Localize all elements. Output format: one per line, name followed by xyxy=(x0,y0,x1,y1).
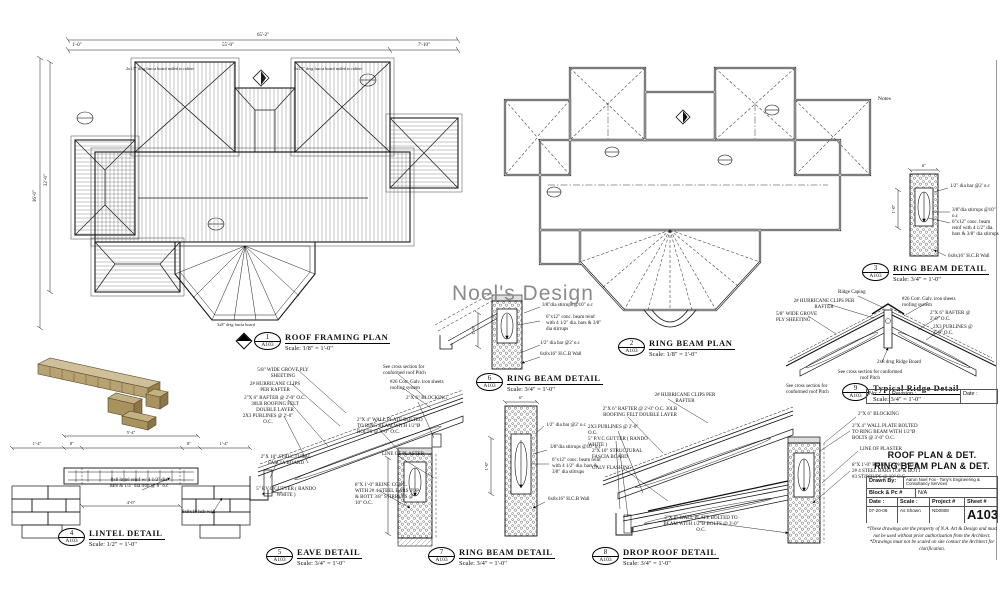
sheet-ref: A103 xyxy=(619,348,644,355)
d8-gutter-label: 5" P.V.C GUTTER ( RANDO WHITE ) xyxy=(588,437,648,449)
d5-wallplate-label: 2"X 4" WALL PLATE BOLTED TO RING BEAM WI… xyxy=(357,418,425,436)
d7-dim-w: 6" xyxy=(519,395,523,400)
sheet-ref: A103 xyxy=(863,273,888,280)
plan1-dim-v-main: 32'-0" xyxy=(44,174,49,186)
d4-dim-l: 1'-4" xyxy=(33,441,42,446)
d4-dim-span: 4'-0" xyxy=(127,500,136,505)
title-block: No: Revision : Date : ROOF PLAN & DET. R… xyxy=(866,389,998,553)
architectural-sheet: { "sheet": { "watermark": "Noel's Design… xyxy=(0,0,1000,600)
d4-dim-l8: 8" xyxy=(70,441,74,446)
detail-number: 9 xyxy=(843,384,868,393)
drawing-scale: Scale: 3/4" = 1'-0" xyxy=(297,559,362,567)
d6-wall-label: 6x8x16" H.C.B Wall xyxy=(540,352,598,358)
north-arrow-icon xyxy=(253,70,269,86)
d3-stirrups-label: 3/8"dia stirrups @10" o.c xyxy=(952,208,1000,220)
d3-beam-label: 6"x12" conc. beam reinf with 4 1/2" dia.… xyxy=(952,220,1000,238)
d5-gutter-label: 5" P.V.C GUTTER ( RANDO WHITE ) xyxy=(255,487,317,499)
d8-purlins-label: 2X3 PURLINES @ 2'-0" O.C. xyxy=(588,425,648,437)
roof-framing-plan-title: 1A103 ROOF FRAMING PLANScale: 1/8" = 1'-… xyxy=(238,332,390,352)
revision-empty-area xyxy=(866,404,998,450)
ring-beam-detail-6-title: 6A103 RING BEAM DETAILScale: 3/4" = 1'-0… xyxy=(476,373,603,393)
sheet-ref: A103 xyxy=(477,383,502,390)
d5-purlins-label: 2X3 PURLINES @ 2'-0" O.C. xyxy=(238,414,298,426)
ring-beam-plan-title: 2A103 RING BEAM PLANScale: 1/8" = 1'-0" xyxy=(618,338,735,358)
scale-label: Scale : xyxy=(898,498,930,506)
d5-conc-label: 8"X 1'-0" REINF. CONC. WITH 2# 4 STEEL B… xyxy=(355,483,421,507)
d9-purlins-label: 2X3 PURLINES @ 2'-0" O.C. xyxy=(933,325,983,337)
north-arrow-icon xyxy=(676,110,690,124)
plan1-dim-v-overall: 36'-0" xyxy=(33,190,38,202)
d9-rafter-label: 2"X 6" RAFTER @ 2'-0" O.C. xyxy=(930,311,980,323)
sheet-ref: A103 xyxy=(59,538,84,545)
drawing-title: RING BEAM PLAN xyxy=(649,338,735,350)
ridge-board-note: 3x8" drsg fascia board xyxy=(196,322,276,327)
d4-reinf-label: 8x8 lintel reinf w/ 4 1/2" dia bars & 1/… xyxy=(108,478,170,490)
d4-dim-top: 5'-4" xyxy=(127,430,136,435)
drawing-title: EAVE DETAIL xyxy=(297,547,362,559)
drop-roof-detail-title: 8A103 DROP ROOF DETAILScale: 3/4" = 1'-0… xyxy=(592,547,719,567)
d5-ply-label: 5/8" WIDE GROVE PLY SHEETING xyxy=(253,368,313,380)
drawn-by-value: Aaron Noel Fox - Tony's Engineering & Co… xyxy=(904,477,997,489)
project-value: ND0808 xyxy=(930,507,965,523)
d9-ridgeboard-label: 2x8 drsg Ridge Board xyxy=(868,360,930,366)
detail-bubble: 5A103 xyxy=(266,547,293,565)
d3-bar-label: 1/2" dia bar @2' o.c xyxy=(950,184,1000,190)
center-lines xyxy=(548,104,828,185)
project-label: Project # xyxy=(930,498,965,506)
drawing-scale: Scale: 3/4" = 1'-0" xyxy=(893,275,989,283)
detail-number: 6 xyxy=(477,374,502,383)
detail-number: 3 xyxy=(863,264,888,273)
d6-beam-label: 6"x12" conc. beam reinf with 4 1/2" dia.… xyxy=(546,315,604,333)
d6-dim-h: 1'-0" xyxy=(471,326,476,335)
ring-beam-detail-7-title: 7A103 RING BEAM DETAILScale: 3/4" = 1'-0… xyxy=(428,547,555,567)
detail-bubble: 7A103 xyxy=(428,547,455,565)
detail-number: 5 xyxy=(267,548,292,557)
plan1-dim-end: 1'-0" xyxy=(72,43,82,48)
sheet-title-line2: RING BEAM PLAN & DET. xyxy=(866,461,998,472)
detail-bubble: 2A103 xyxy=(618,338,645,356)
d7-dim-h: 1'-0" xyxy=(484,462,489,471)
detail-bubble: 3A103 xyxy=(862,263,889,281)
drawing-scale: Scale: 1/2" = 1'-0" xyxy=(89,540,165,548)
detail-number: 1 xyxy=(255,333,280,342)
block-pc-label: Block & Pc # xyxy=(867,489,916,497)
d9-corr-label: #26 Corr. Galv. iron sheets roofing syst… xyxy=(902,297,964,309)
drawn-by-label: Drawn By: xyxy=(867,477,904,489)
roof-planes xyxy=(75,62,458,320)
detail-number: 2 xyxy=(619,339,644,348)
block-pc-row: Block & Pc # N/A xyxy=(866,488,998,497)
bay-arcs xyxy=(644,310,696,327)
drawing-title: DROP ROOF DETAIL xyxy=(623,547,719,559)
d4-dim-r: 1'-4" xyxy=(220,441,229,446)
drawing-title: RING BEAM DETAIL xyxy=(893,263,989,275)
fascia-note-left: 2x1.5" drsg fascia board nailed to rafte… xyxy=(120,66,200,71)
d9-clips-label: 2# HURRICANE CLIPS PER RAFTER xyxy=(793,299,855,311)
d8-rafter-label: 2"X 6" RAFTER @ 2'-0" O.C. 30LB ROOFING … xyxy=(600,407,680,419)
d9-capping-label: Ridge Caping xyxy=(838,290,883,296)
meta-value-row: 07-20-06 As Shown ND0808 A103 xyxy=(866,506,998,523)
detail-number: 4 xyxy=(59,529,84,538)
d8-cross-label-2: See cross section for conformed roof Pit… xyxy=(786,384,841,396)
drawing-title: RING BEAM DETAIL xyxy=(507,373,603,385)
fascia-note-right: 2x1.5" drsg fascia board nailed to rafte… xyxy=(288,66,368,71)
sheet-title: ROOF PLAN & DET. RING BEAM PLAN & DET. xyxy=(866,450,998,473)
d9-cross-label: See cross section for conformed roof Pit… xyxy=(834,370,906,382)
roof-framing-plan-drawing: 65'-2" 55'-0" 7'-10" 1'-0" 36'-0" 32'-0" xyxy=(28,28,468,338)
d9-ply-label: 5/8" WIDE GROVE PLY SHEETING xyxy=(776,312,826,324)
drawing-scale: Scale: 3/4" = 1'-0" xyxy=(459,559,555,567)
revision-label: Revision : xyxy=(890,390,961,403)
detail-number: 8 xyxy=(593,548,618,557)
drawing-title: LINTEL DETAIL xyxy=(89,528,165,540)
disclaimer-text: *These drawings are the property of N.A.… xyxy=(866,527,998,553)
sheet-ref: A103 xyxy=(843,393,868,400)
d6-bar-label: 1/2" dia bar @2' o.c xyxy=(540,341,598,347)
d3-dim-w: 6" xyxy=(922,163,926,168)
sheet-ref: A103 xyxy=(593,557,618,564)
drawing-scale: Scale: 1/8" = 1'-0" xyxy=(285,344,390,352)
drawing-title: ROOF FRAMING PLAN xyxy=(285,332,390,344)
lintel-isometric-sketch xyxy=(30,336,180,431)
detail-bubble: 8A103 xyxy=(592,547,619,565)
scale-value: As Shown xyxy=(898,507,930,523)
sheet-ref: A103 xyxy=(255,342,280,349)
d5-clips-label: 2# HURRICANE CLIPS PER RAFTER xyxy=(246,382,304,394)
sheet-number: A103 xyxy=(965,507,997,523)
ring-beam-detail-3-title: 3A103 RING BEAM DETAILScale: 3/4" = 1'-0… xyxy=(862,263,989,283)
sheet-title-line1: ROOF PLAN & DET. xyxy=(866,450,998,461)
detail-number: 7 xyxy=(429,548,454,557)
drawing-scale: Scale: 3/4" = 1'-0" xyxy=(507,385,603,393)
detail-bubble: 4A103 xyxy=(58,528,85,546)
date-label: Date : xyxy=(961,390,997,403)
drawn-by-row: Drawn By: Aaron Noel Fox - Tony's Engine… xyxy=(866,476,998,489)
date-value: 07-20-06 xyxy=(867,507,898,523)
d3-dim-h: 1'-0" xyxy=(891,205,896,214)
d8-flashing-label: GALV FLASHING xyxy=(592,466,647,472)
sheet-label: Sheet # xyxy=(965,498,997,506)
d5-cross-label: See cross section for conformed roof Pit… xyxy=(383,365,443,377)
date-label: Date : xyxy=(867,498,898,506)
lintel-detail-title: 4A103 LINTEL DETAILScale: 1/2" = 1'-0" xyxy=(58,528,165,548)
callout-bubbles xyxy=(547,105,779,197)
plan1-dim-overall: 65'-2" xyxy=(257,33,269,38)
d4-wall-label: 8x8x18 hcb wall xyxy=(182,510,234,516)
no-label: No: xyxy=(867,390,890,403)
d5-fascia-label: 2"X 10" STRUCTURAL FASCIA BOARD xyxy=(258,455,314,467)
block-pc-value: N/A xyxy=(916,489,997,497)
d4-dim-r8: 8" xyxy=(187,441,191,446)
eave-detail-title: 5A103 EAVE DETAILScale: 3/4" = 1'-0" xyxy=(266,547,362,567)
d3-wall-label: 6x8x16" H.C.B Wall xyxy=(948,254,998,260)
north-arrow-icon xyxy=(236,333,253,350)
sheet-ref: A103 xyxy=(429,557,454,564)
detail-bubble: 9A103 xyxy=(842,383,869,401)
drawing-title: RING BEAM DETAIL xyxy=(459,547,555,559)
detail-bubble: 6A103 xyxy=(476,373,503,391)
plan1-dim-main: 55'-0" xyxy=(222,43,234,48)
d5-plaster-label: LINE OF PLASTER xyxy=(382,452,437,458)
leader-lines xyxy=(616,399,858,533)
d5-corr-label: #26 Corr. Galv. iron sheets roofing syst… xyxy=(390,380,450,392)
drawing-scale: Scale: 3/4" = 1'-0" xyxy=(623,559,719,567)
d5-rafter-label: 2"X 6" RAFTER @ 2'-0" O.C. 30LB ROOFING … xyxy=(242,396,308,414)
d5-blocking-label: 2"X 6" BLOCKING xyxy=(406,396,461,402)
d7-wall-label: 6x8x16" H.C.B Wall xyxy=(548,497,604,503)
revision-header-row: No: Revision : Date : xyxy=(866,389,998,404)
sheet-ref: A103 xyxy=(267,557,292,564)
notes-label: Notes xyxy=(878,96,891,103)
designer-watermark: Noel's Design xyxy=(452,282,594,306)
drawing-scale: Scale: 1/8" = 1'-0" xyxy=(649,350,735,358)
detail-bubble: 1A103 xyxy=(254,332,281,350)
d8-clips-label: 2# HURRICANE CLIPS PER RAFTER xyxy=(650,393,720,405)
meta-header-row: Date : Scale : Project # Sheet # xyxy=(866,497,998,506)
d8-fascia-label: 2"X 10" STRUCTURAL FASCIA BOARD xyxy=(592,449,652,461)
plan1-dim-right: 7'-10" xyxy=(418,43,430,48)
d8-wallplate-low-label: 2"X 6" WALL PLATE BOLTED TO BEAM WITH 1/… xyxy=(660,516,742,534)
